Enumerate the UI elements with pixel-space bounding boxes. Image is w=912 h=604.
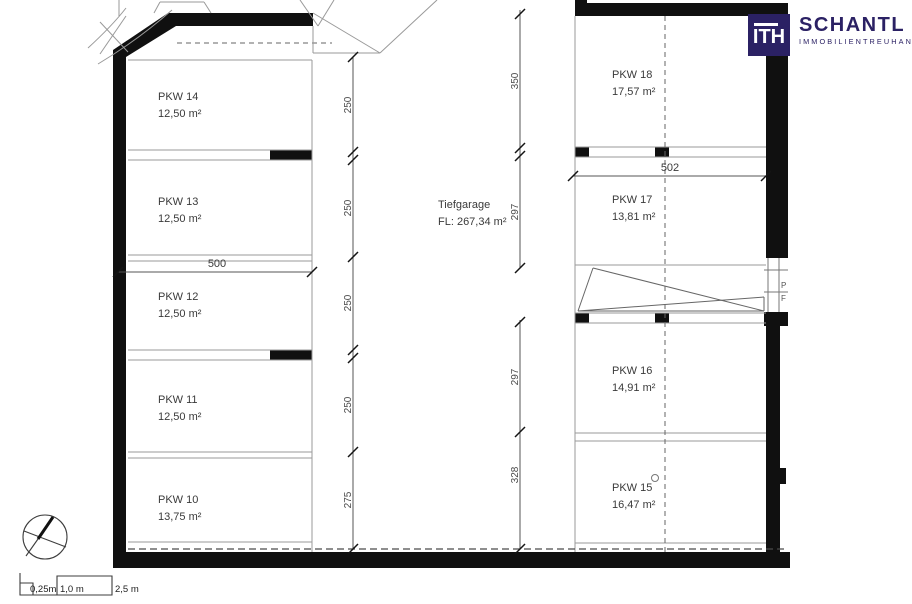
stall-area: 14,91 m²	[612, 382, 656, 394]
garage-title: Tiefgarage FL: 267,34 m²	[438, 199, 507, 228]
dim-label: 250	[343, 294, 354, 311]
stall-name: PKW 17	[612, 194, 652, 206]
stall-area: 13,81 m²	[612, 211, 656, 223]
dim-label: 297	[510, 368, 521, 385]
dim-label: 350	[510, 72, 521, 89]
dimension-middle-lower: 297 328	[510, 317, 525, 554]
stall-name: PKW 10	[158, 494, 198, 506]
logo-company-subtitle: IMMOBILIENTREUHAND	[799, 37, 912, 46]
dim-label: 250	[343, 199, 354, 216]
scale-label: 1,0 m	[60, 584, 84, 595]
logo-company-name: SCHANTL	[799, 15, 912, 35]
dim-label: 250	[343, 396, 354, 413]
dim-label: 328	[510, 466, 521, 483]
stall-area: 13,75 m²	[158, 511, 202, 523]
scale-label: 0,25m	[30, 584, 56, 595]
stall-name: PKW 14	[158, 91, 198, 103]
pillar	[270, 150, 312, 160]
stall-area: 12,50 m²	[158, 213, 202, 225]
stall-name: PKW 16	[612, 365, 652, 377]
stall-area: 12,50 m²	[158, 411, 202, 423]
floor-plan-drawing: 250 250 250 250 275 350 297 297 328 500 …	[0, 0, 912, 604]
company-logo: ITH SCHANTL IMMOBILIENTREUHAND	[748, 14, 912, 56]
pillar	[655, 147, 669, 157]
dim-label: 500	[208, 258, 226, 270]
logo-mark-icon: ITH	[748, 14, 790, 56]
ramp-symbol	[578, 268, 764, 311]
edge-label-f: F	[781, 294, 786, 303]
dim-label: 297	[510, 203, 521, 220]
dashed-lines	[128, 16, 788, 552]
wall-right-lower	[766, 326, 780, 552]
pillar	[655, 313, 669, 323]
wall-bottom	[113, 552, 790, 568]
stall-name: PKW 15	[612, 482, 652, 494]
wall-top-right-notch	[575, 0, 587, 4]
pillar	[575, 313, 589, 323]
wall-left	[113, 13, 313, 552]
edge-label-p: P	[781, 281, 786, 290]
left-stall-lines	[128, 60, 312, 552]
logo-monogram: ITH	[753, 26, 785, 49]
garage-title-name: Tiefgarage	[438, 199, 490, 211]
pillar	[575, 147, 589, 157]
garage-title-area: FL: 267,34 m²	[438, 216, 507, 228]
floor-plan-page: 250 250 250 250 275 350 297 297 328 500 …	[0, 0, 912, 604]
floor-drain-marker	[652, 475, 659, 482]
stall-name: PKW 13	[158, 196, 198, 208]
stall-name: PKW 18	[612, 69, 652, 81]
dimension-width-right: 502	[568, 162, 771, 181]
wall-right-pier	[764, 312, 788, 326]
stall-name: PKW 12	[158, 291, 198, 303]
dimension-left-column: 250 250 250 250 275	[343, 52, 358, 554]
dim-label: 502	[661, 162, 679, 174]
stall-area: 16,47 m²	[612, 499, 656, 511]
dim-label: 250	[343, 96, 354, 113]
pillar	[270, 350, 312, 360]
right-stall-labels: PKW 18 17,57 m² PKW 17 13,81 m² PKW 16 1…	[612, 69, 656, 511]
scale-label: 2,5 m	[115, 584, 139, 595]
stall-area: 12,50 m²	[158, 108, 202, 120]
north-compass	[23, 515, 67, 559]
stall-name: PKW 11	[158, 394, 198, 406]
dimension-middle-upper: 350 297	[510, 9, 525, 273]
walls	[113, 0, 790, 568]
right-stall-lines	[575, 16, 766, 552]
logo-text: SCHANTL IMMOBILIENTREUHAND	[799, 14, 912, 46]
logo-mark-bar	[754, 23, 778, 26]
compass-circle	[23, 515, 67, 559]
stall-area: 17,57 m²	[612, 86, 656, 98]
stall-area: 12,50 m²	[158, 308, 202, 320]
wall-right-protrusion	[766, 468, 786, 484]
dim-label: 275	[343, 491, 354, 508]
scale-bar: 0,25m 1,0 m 2,5 m	[20, 573, 139, 595]
